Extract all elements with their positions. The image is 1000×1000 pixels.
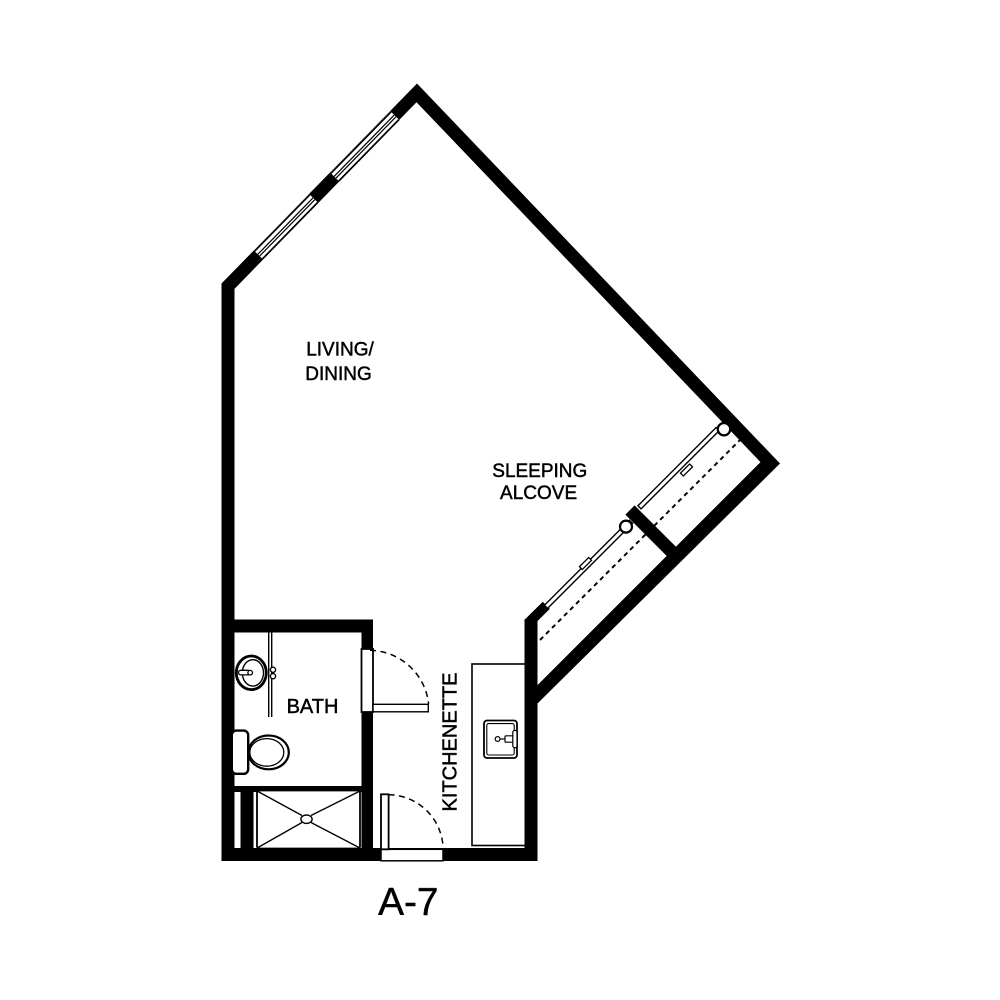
svg-text:ALCOVE: ALCOVE [500, 483, 577, 504]
svg-text:SLEEPING: SLEEPING [492, 461, 587, 482]
svg-text:LIVING/: LIVING/ [306, 340, 374, 361]
svg-text:A-7: A-7 [378, 881, 438, 924]
svg-text:DINING: DINING [305, 364, 372, 385]
svg-text:KITCHENETTE: KITCHENETTE [440, 673, 462, 812]
svg-text:BATH: BATH [287, 696, 339, 718]
